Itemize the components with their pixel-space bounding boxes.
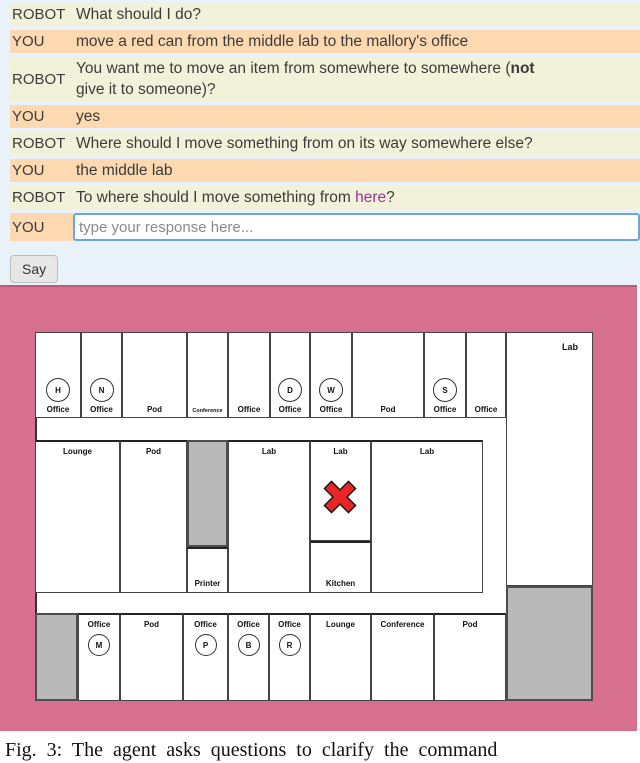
room-office-p-label: Office — [184, 620, 227, 629]
room-office-s-label: Office — [425, 405, 465, 414]
room-pod-mid: Pod — [120, 440, 187, 593]
chat-message: What should I do? — [73, 3, 640, 26]
room-office-top5: Office — [228, 332, 270, 418]
room-pod-bottom2-label: Pod — [435, 620, 505, 629]
chat-message: To where should I move something from he… — [73, 186, 640, 209]
room-office-b-initial: B — [238, 634, 260, 656]
say-button[interactable]: Say — [10, 255, 58, 283]
block-stairs-mid — [187, 440, 228, 547]
speaker-label: ROBOT — [10, 3, 73, 26]
room-office-h-initial: H — [46, 378, 70, 402]
chat-message: You want me to move an item from somewhe… — [73, 57, 640, 101]
room-office-d-label: Office — [271, 405, 309, 414]
here-link[interactable]: here — [355, 189, 386, 206]
block-stairs-right — [506, 586, 593, 701]
room-lab-right: Lab — [371, 440, 483, 593]
room-pod-top2-label: Pod — [353, 405, 423, 414]
chat-history: ROBOTWhat should I do?YOUmove a red can … — [10, 3, 640, 209]
room-lab-right-label: Lab — [372, 447, 482, 456]
room-lab-big-label: Lab — [562, 342, 578, 582]
speaker-label: YOU — [10, 105, 73, 128]
room-office-p: OfficeP — [183, 613, 228, 701]
chat-message: move a red can from the middle lab to th… — [73, 30, 640, 53]
room-pod-bottom2: Pod — [434, 613, 506, 701]
chat-message: Where should I move something from on it… — [73, 132, 640, 155]
room-pod-bottom1: Pod — [120, 613, 183, 701]
chat-row-input: YOU — [10, 213, 640, 241]
room-lab-big: Lab — [506, 332, 593, 586]
speaker-label: ROBOT — [10, 132, 73, 155]
room-office-m: OfficeM — [78, 613, 120, 701]
room-lab-left: Lab — [228, 440, 310, 593]
room-office-r-initial: R — [279, 634, 301, 656]
room-conference-bottom: Conference — [371, 613, 434, 701]
room-lounge-mid-label: Lounge — [36, 447, 119, 456]
room-office-s: OfficeS — [424, 332, 466, 418]
chat-row: ROBOTTo where should I move something fr… — [10, 186, 640, 209]
room-lounge-bottom: Lounge — [310, 613, 371, 701]
room-office-n: OfficeN — [81, 332, 122, 418]
response-input[interactable] — [73, 213, 640, 241]
chat-row: YOUthe middle lab — [10, 159, 640, 182]
room-office-b-label: Office — [229, 620, 268, 629]
chat-row: ROBOTWhat should I do? — [10, 3, 640, 26]
room-printer: Printer — [187, 547, 228, 593]
room-lounge-bottom-label: Lounge — [311, 620, 370, 629]
speaker-label: ROBOT — [10, 186, 73, 209]
room-office-h: OfficeH — [35, 332, 81, 418]
room-office-top10-label: Office — [467, 405, 505, 414]
speaker-label-you: YOU — [10, 213, 73, 241]
chat-row: ROBOTYou want me to move an item from so… — [10, 57, 640, 101]
room-office-n-initial: N — [90, 378, 114, 402]
room-office-top5-label: Office — [229, 405, 269, 414]
room-office-r: OfficeR — [269, 613, 310, 701]
room-conference-bottom-label: Conference — [372, 620, 433, 629]
chat-row: YOUmove a red can from the middle lab to… — [10, 30, 640, 53]
room-kitchen: Kitchen — [310, 541, 371, 593]
room-office-w: OfficeW — [310, 332, 352, 418]
chat-row: ROBOTWhere should I move something from … — [10, 132, 640, 155]
room-office-s-initial: S — [433, 378, 457, 402]
room-printer-label: Printer — [188, 579, 227, 588]
target-x-marker — [320, 477, 360, 517]
speaker-label: ROBOT — [10, 57, 73, 101]
room-pod-bottom1-label: Pod — [121, 620, 182, 629]
chat-message: yes — [73, 105, 640, 128]
room-office-n-label: Office — [82, 405, 121, 414]
room-kitchen-label: Kitchen — [311, 579, 370, 588]
chat-message: the middle lab — [73, 159, 640, 182]
room-office-b: OfficeB — [228, 613, 269, 701]
room-office-d-initial: D — [278, 378, 302, 402]
room-office-h-label: Office — [36, 405, 80, 414]
block-stairs-left — [35, 613, 78, 701]
figure-caption: Fig. 3: The agent asks questions to clar… — [0, 737, 640, 763]
room-office-d: OfficeD — [270, 332, 310, 418]
chat-panel: ROBOTWhat should I do?YOUmove a red can … — [0, 0, 640, 285]
room-conference-top: Conference — [187, 332, 228, 418]
floor-map: OfficeHOfficeNPodConferenceOfficeOfficeD… — [0, 285, 637, 731]
room-pod-top2: Pod — [352, 332, 424, 418]
room-pod-mid-label: Pod — [121, 447, 186, 456]
speaker-label: YOU — [10, 30, 73, 53]
room-office-w-label: Office — [311, 405, 351, 414]
room-conference-top-label: Conference — [188, 408, 227, 414]
room-office-p-initial: P — [195, 634, 217, 656]
room-office-r-label: Office — [270, 620, 309, 629]
room-office-m-label: Office — [79, 620, 119, 629]
room-office-w-initial: W — [319, 378, 343, 402]
room-lab-middle-label: Lab — [311, 447, 370, 456]
room-pod-top1-label: Pod — [123, 405, 186, 414]
room-pod-top1: Pod — [122, 332, 187, 418]
room-office-top10: Office — [466, 332, 506, 418]
room-lounge-mid: Lounge — [35, 440, 120, 593]
room-lab-left-label: Lab — [229, 447, 309, 456]
room-office-m-initial: M — [88, 634, 110, 656]
chat-row: YOUyes — [10, 105, 640, 128]
speaker-label: YOU — [10, 159, 73, 182]
